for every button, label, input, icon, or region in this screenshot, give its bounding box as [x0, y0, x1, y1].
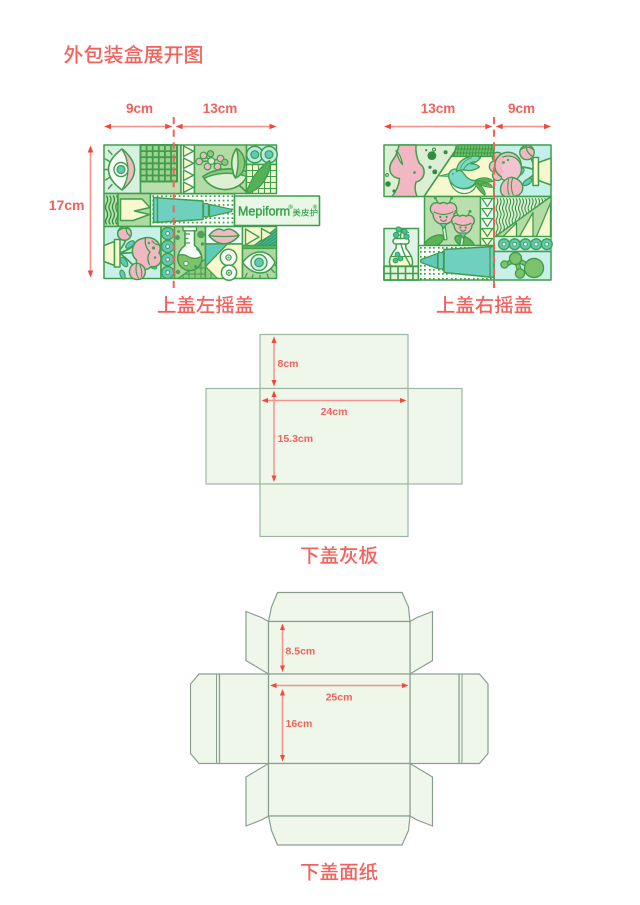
svg-text:®: ® [289, 204, 294, 211]
svg-text:16cm: 16cm [286, 718, 313, 730]
svg-text:8.5cm: 8.5cm [286, 646, 316, 658]
svg-text:17cm: 17cm [49, 197, 85, 213]
svg-text:25cm: 25cm [326, 692, 353, 704]
svg-text:9cm: 9cm [508, 101, 535, 116]
svg-text:15.3cm: 15.3cm [278, 433, 314, 445]
svg-text:13cm: 13cm [421, 101, 456, 116]
svg-text:8cm: 8cm [278, 358, 299, 370]
svg-text:Mepiform: Mepiform [238, 205, 290, 219]
svg-text:13cm: 13cm [203, 101, 238, 116]
svg-text:24cm: 24cm [321, 406, 348, 418]
svg-text:9cm: 9cm [126, 101, 153, 116]
